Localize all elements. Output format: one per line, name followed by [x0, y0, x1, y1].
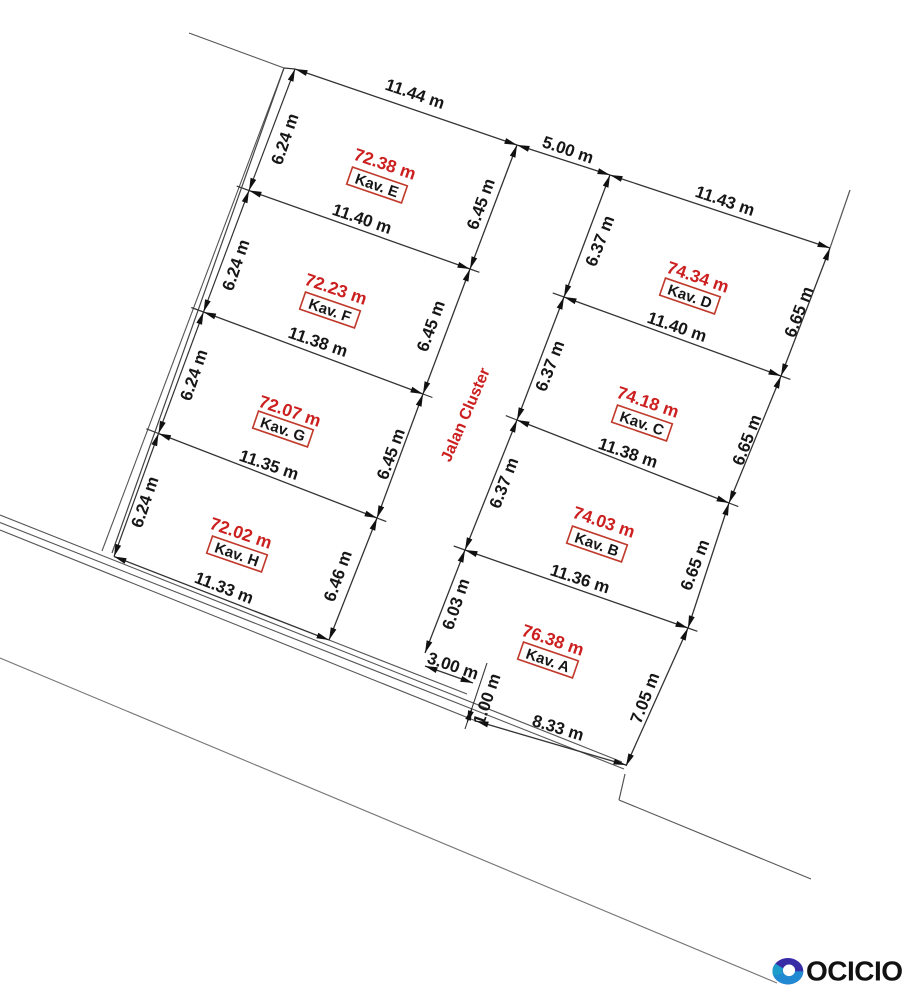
svg-text:OCICIO: OCICIO	[806, 956, 903, 987]
